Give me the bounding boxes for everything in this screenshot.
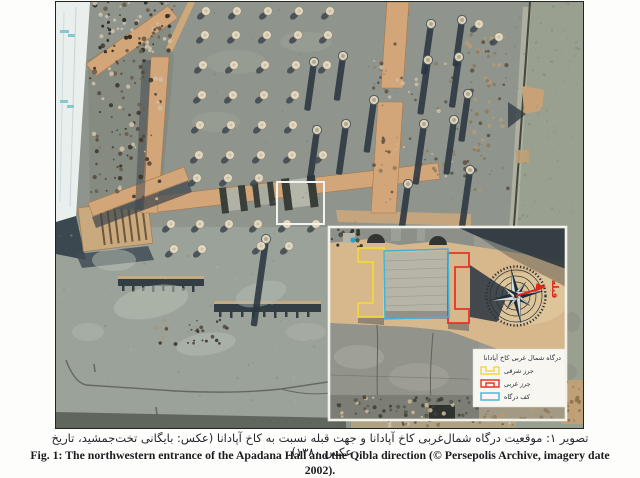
aerial-scene: قبله درگاه شمال غربی کاخ آپادانا جرز شرق… <box>56 2 583 428</box>
legend-label: جرز شرقی <box>504 367 534 375</box>
legend-label: کف درگاه <box>504 393 531 401</box>
inset-legend: درگاه شمال غربی کاخ آپادانا جرز شرقی جرز… <box>473 349 566 407</box>
inset-box: قبله درگاه شمال غربی کاخ آپادانا جرز شرق… <box>329 227 569 420</box>
legend-title: درگاه شمال غربی کاخ آپادانا <box>484 353 561 362</box>
doorway-floor <box>384 251 448 319</box>
aerial-photo: قبله درگاه شمال غربی کاخ آپادانا جرز شرق… <box>55 1 584 429</box>
caption-english: Fig. 1: The northwestern entrance of the… <box>30 448 610 478</box>
document-page: قبله درگاه شمال غربی کاخ آپادانا جرز شرق… <box>0 0 640 472</box>
qibla-label: قبله <box>549 280 559 299</box>
legend-label: جرز غربی <box>504 380 531 388</box>
blue-object <box>350 237 355 242</box>
